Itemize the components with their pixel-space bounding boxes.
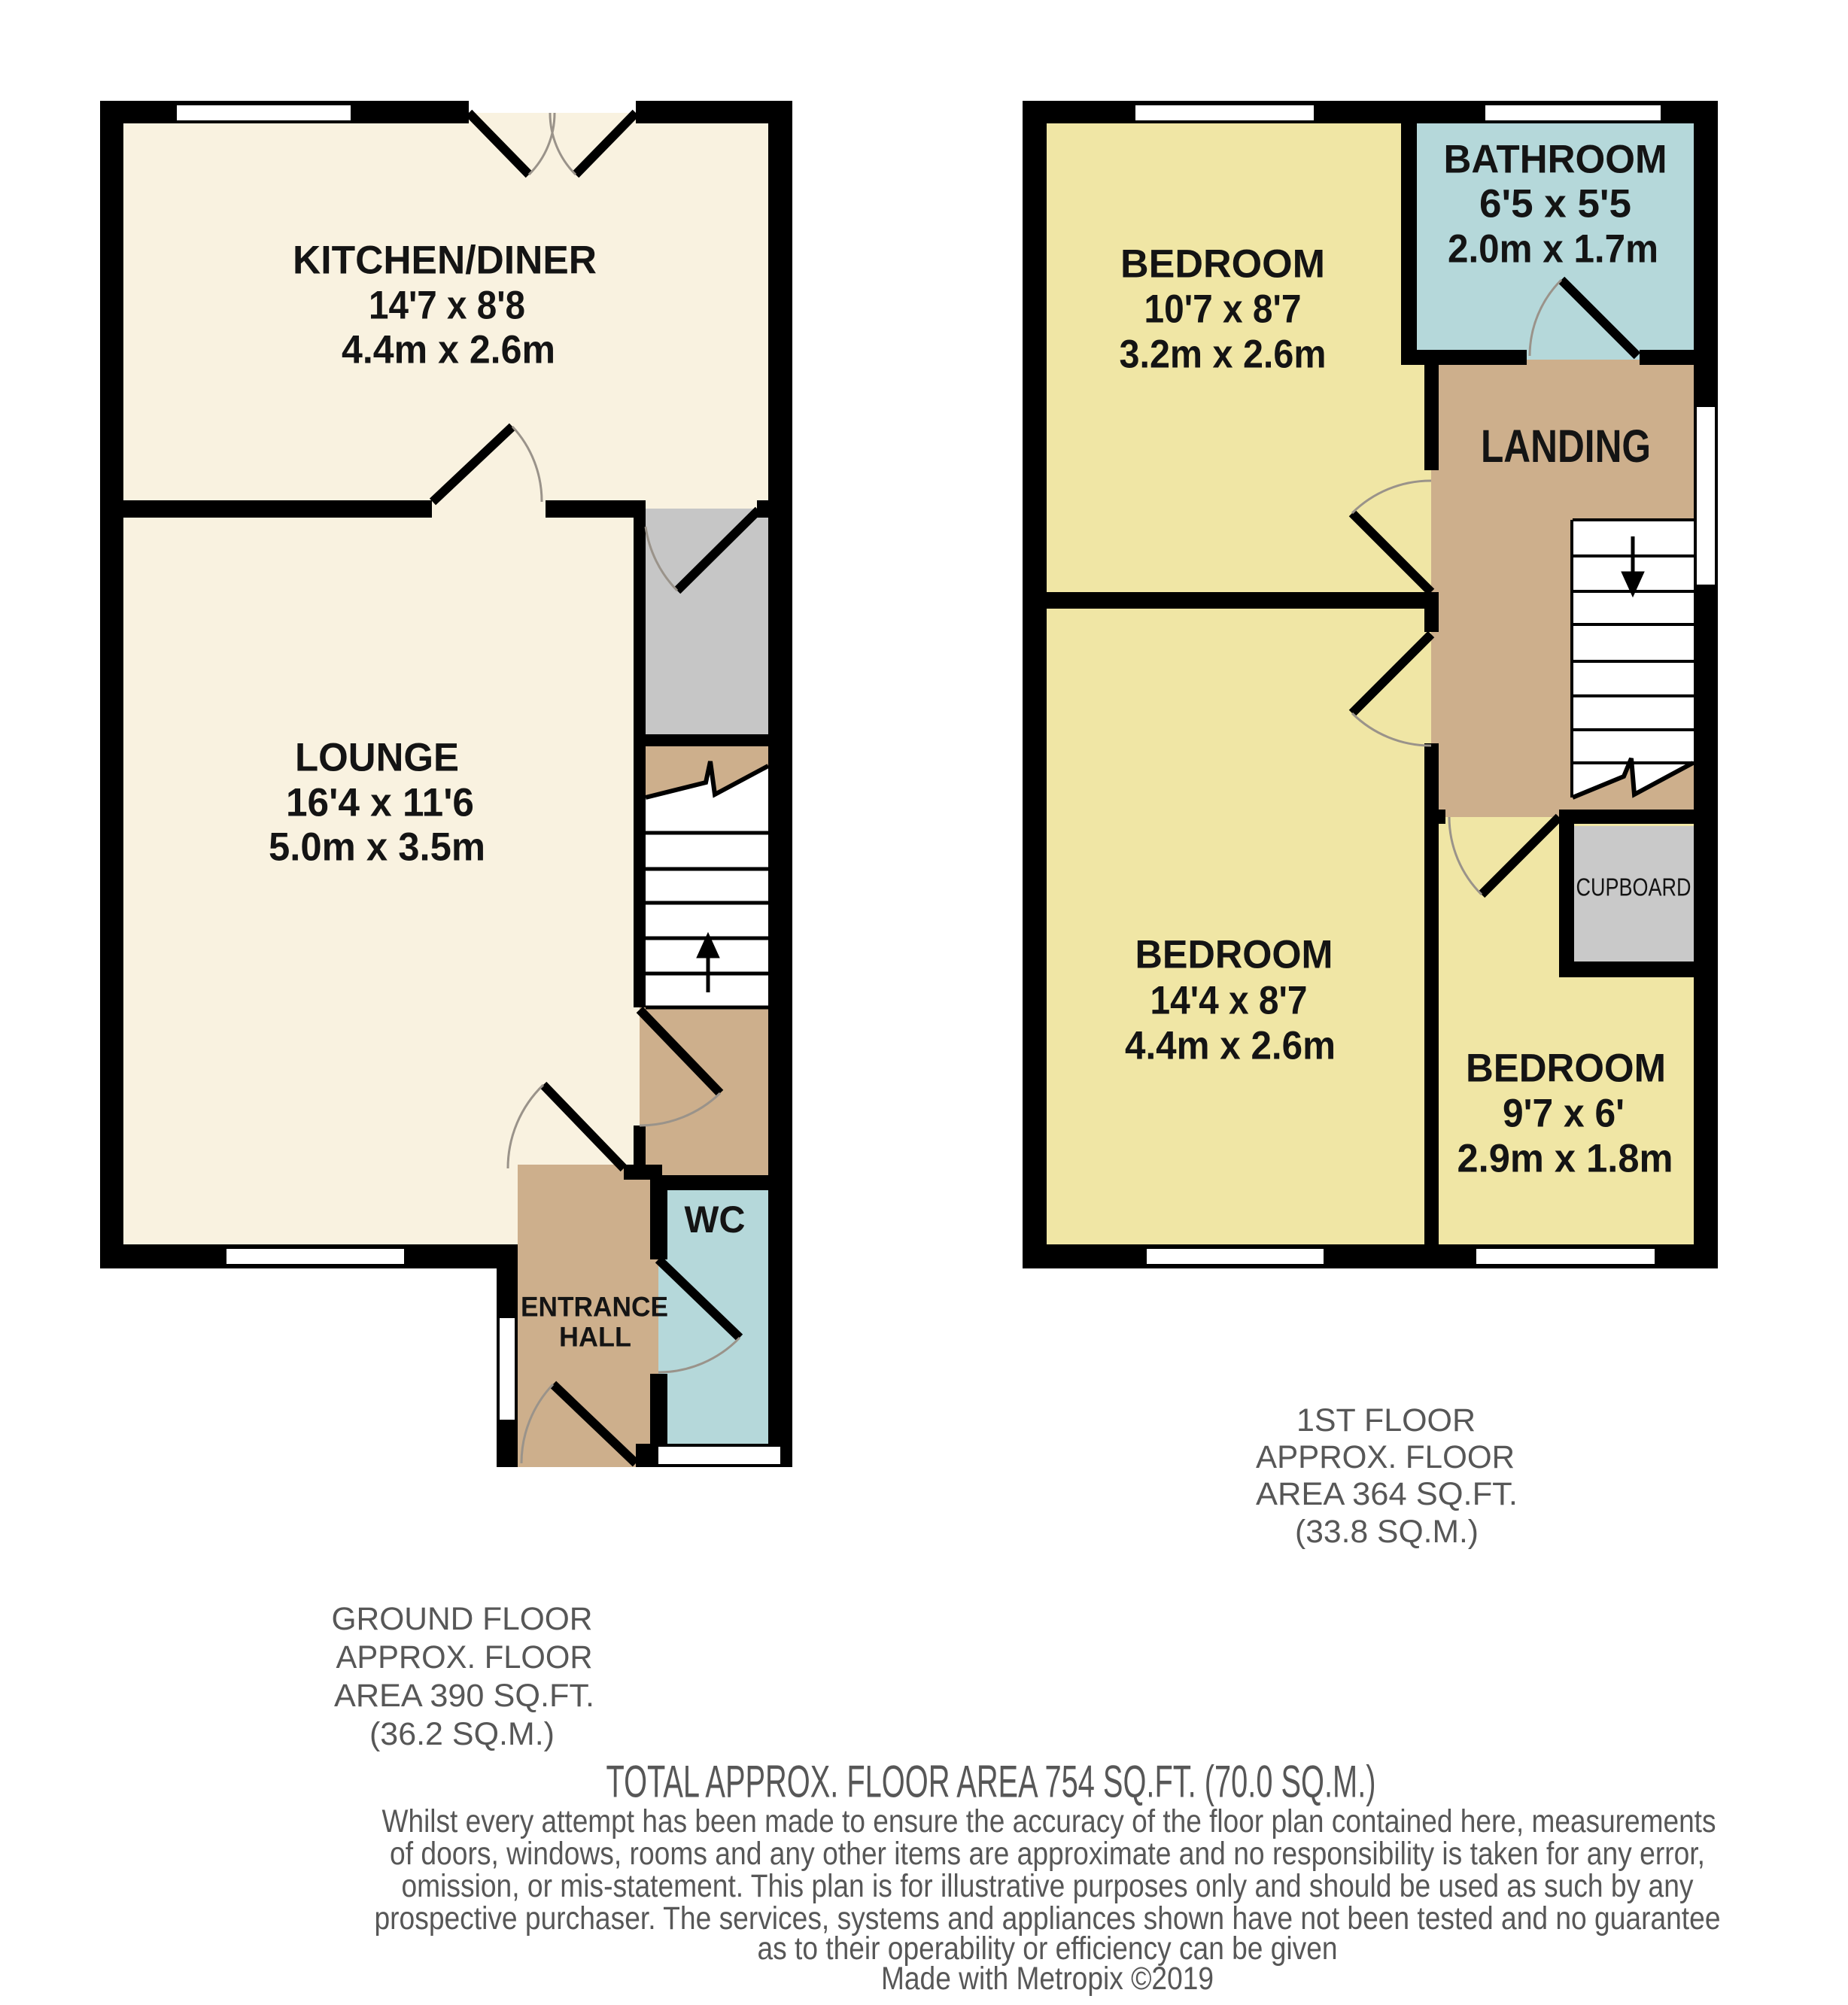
svg-text:GROUND FLOOR: GROUND FLOOR	[332, 1601, 593, 1637]
svg-text:(36.2 SQ.M.): (36.2 SQ.M.)	[369, 1716, 555, 1752]
svg-text:2.0m x 1.7m: 2.0m x 1.7m	[1448, 227, 1658, 272]
svg-text:of doors, windows, rooms and a: of doors, windows, rooms and any other i…	[390, 1836, 1705, 1872]
svg-text:BATHROOM: BATHROOM	[1444, 138, 1667, 182]
svg-text:AREA 390 SQ.FT.: AREA 390 SQ.FT.	[334, 1678, 594, 1714]
svg-text:5.0m x 3.5m: 5.0m x 3.5m	[269, 825, 485, 870]
svg-text:BEDROOM: BEDROOM	[1466, 1047, 1666, 1091]
svg-text:BEDROOM: BEDROOM	[1120, 242, 1325, 287]
svg-text:2.9m x 1.8m: 2.9m x 1.8m	[1457, 1137, 1673, 1181]
svg-text:BEDROOM: BEDROOM	[1135, 933, 1333, 977]
svg-text:LOUNGE: LOUNGE	[295, 736, 459, 780]
svg-text:Whilst every attempt has been: Whilst every attempt has been made to en…	[382, 1803, 1716, 1839]
svg-text:14'7 x 8'8: 14'7 x 8'8	[369, 284, 525, 328]
svg-text:6'5 x 5'5: 6'5 x 5'5	[1479, 182, 1631, 226]
svg-text:3.2m x 2.6m: 3.2m x 2.6m	[1120, 333, 1327, 377]
svg-text:APPROX. FLOOR: APPROX. FLOOR	[1256, 1439, 1515, 1475]
svg-text:(33.8 SQ.M.): (33.8 SQ.M.)	[1295, 1514, 1479, 1550]
svg-text:omission, or mis-statement. Th: omission, or mis-statement. This plan is…	[402, 1868, 1694, 1904]
svg-text:14'4 x 8'7: 14'4 x 8'7	[1150, 979, 1308, 1023]
svg-text:ENTRANCE: ENTRANCE	[521, 1292, 668, 1323]
svg-text:10'7 x 8'7: 10'7 x 8'7	[1144, 287, 1302, 332]
svg-text:16'4 x 11'6: 16'4 x 11'6	[286, 781, 474, 825]
svg-text:4.4m x 2.6m: 4.4m x 2.6m	[1125, 1024, 1336, 1068]
svg-text:KITCHEN/DINER: KITCHEN/DINER	[293, 238, 597, 283]
svg-text:4.4m x 2.6m: 4.4m x 2.6m	[342, 328, 555, 372]
svg-text:CUPBOARD: CUPBOARD	[1576, 873, 1691, 901]
svg-text:LANDING: LANDING	[1481, 421, 1651, 472]
svg-text:AREA 364 SQ.FT.: AREA 364 SQ.FT.	[1256, 1476, 1518, 1512]
svg-text:APPROX. FLOOR: APPROX. FLOOR	[336, 1639, 593, 1675]
svg-text:1ST FLOOR: 1ST FLOOR	[1296, 1402, 1476, 1438]
svg-text:WC: WC	[685, 1198, 746, 1241]
svg-text:9'7 x 6': 9'7 x 6'	[1503, 1092, 1625, 1136]
svg-text:TOTAL APPROX. FLOOR AREA 754 S: TOTAL APPROX. FLOOR AREA 754 SQ.FT. (70.…	[606, 1757, 1376, 1807]
svg-text:HALL: HALL	[559, 1322, 631, 1353]
svg-text:Made with Metropix ©2019: Made with Metropix ©2019	[881, 1961, 1214, 1997]
